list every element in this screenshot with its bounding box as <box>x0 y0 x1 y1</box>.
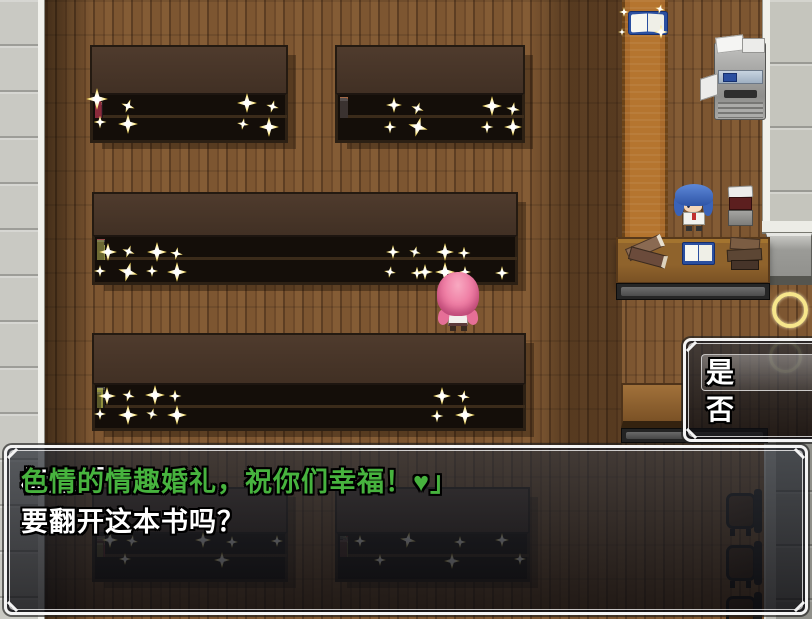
book-pile-beside-npc <box>727 186 754 227</box>
bookshelf-books <box>90 93 288 143</box>
brown-book-stack <box>727 236 765 273</box>
book-spine <box>95 98 101 118</box>
selection-ring <box>772 292 808 328</box>
bookshelf-top-surface <box>92 192 518 235</box>
player-pink-hair <box>437 272 479 316</box>
player-character <box>436 272 480 332</box>
library-counter-front <box>616 283 770 300</box>
photocopier-panel <box>718 70 763 84</box>
librarian-npc[interactable] <box>674 184 714 234</box>
book-page-left <box>685 245 698 261</box>
choice-window: 是 否 <box>683 338 812 442</box>
window-corner-ornament <box>7 448 18 459</box>
npc-blue-hair <box>675 184 713 206</box>
choice-option-yes[interactable]: 是 <box>706 355 812 391</box>
photocopier-slot <box>724 90 757 98</box>
window-corner-ornament <box>686 428 697 439</box>
book-spine <box>340 99 348 118</box>
window-corner-ornament <box>686 341 697 352</box>
floor-shadow-mid <box>528 0 622 447</box>
bookshelf-books <box>335 93 525 143</box>
bookshelf-top-surface <box>335 45 525 93</box>
bookshelf-top-left[interactable] <box>90 45 288 143</box>
book-page-left <box>631 13 647 32</box>
book-spine <box>97 392 101 408</box>
window-corner-ornament <box>794 448 805 459</box>
photocopier-paper <box>715 34 745 53</box>
glowing-open-book[interactable] <box>626 4 670 38</box>
window-corner-ornament <box>794 601 805 612</box>
book-row <box>340 97 524 118</box>
photocopier-screen <box>723 73 737 82</box>
message-window[interactable]: 标题「色情的情趣婚礼，祝你们幸福！♥」 要翻开这本书吗？ <box>4 445 808 615</box>
small-desk <box>621 383 684 428</box>
message-book-title: 色情的情趣婚礼，祝你们幸福！♥」 <box>21 465 458 499</box>
npc-tie <box>692 213 696 220</box>
book-row <box>95 97 287 118</box>
book-row <box>97 239 517 260</box>
side-cabinet-base <box>766 276 812 285</box>
bookshelf-top-surface <box>92 333 526 383</box>
book-page-right <box>648 13 664 32</box>
book-spine <box>97 240 104 260</box>
bookshelf-top-right[interactable] <box>335 45 525 143</box>
open-book-on-counter[interactable] <box>682 240 715 267</box>
photocopier[interactable] <box>700 36 770 124</box>
book-page-right <box>699 245 712 261</box>
stone-path-right <box>770 0 812 222</box>
photocopier-lid <box>742 38 765 53</box>
book-row <box>97 387 525 408</box>
window-corner-ornament <box>7 601 18 612</box>
photocopier-vents <box>718 102 763 118</box>
bookshelf-top-surface <box>90 45 288 93</box>
game-screen: 是 否 标题「色情的情趣婚礼，祝你们幸福！♥」 要翻开这本书吗？ <box>0 0 812 619</box>
tilted-book-stack <box>624 234 672 272</box>
bookshelf-lower[interactable] <box>92 333 526 431</box>
bookshelf-books <box>92 383 526 431</box>
message-line-2: 要翻开这本书吗？ <box>21 505 245 539</box>
choice-option-no[interactable]: 否 <box>706 392 812 428</box>
